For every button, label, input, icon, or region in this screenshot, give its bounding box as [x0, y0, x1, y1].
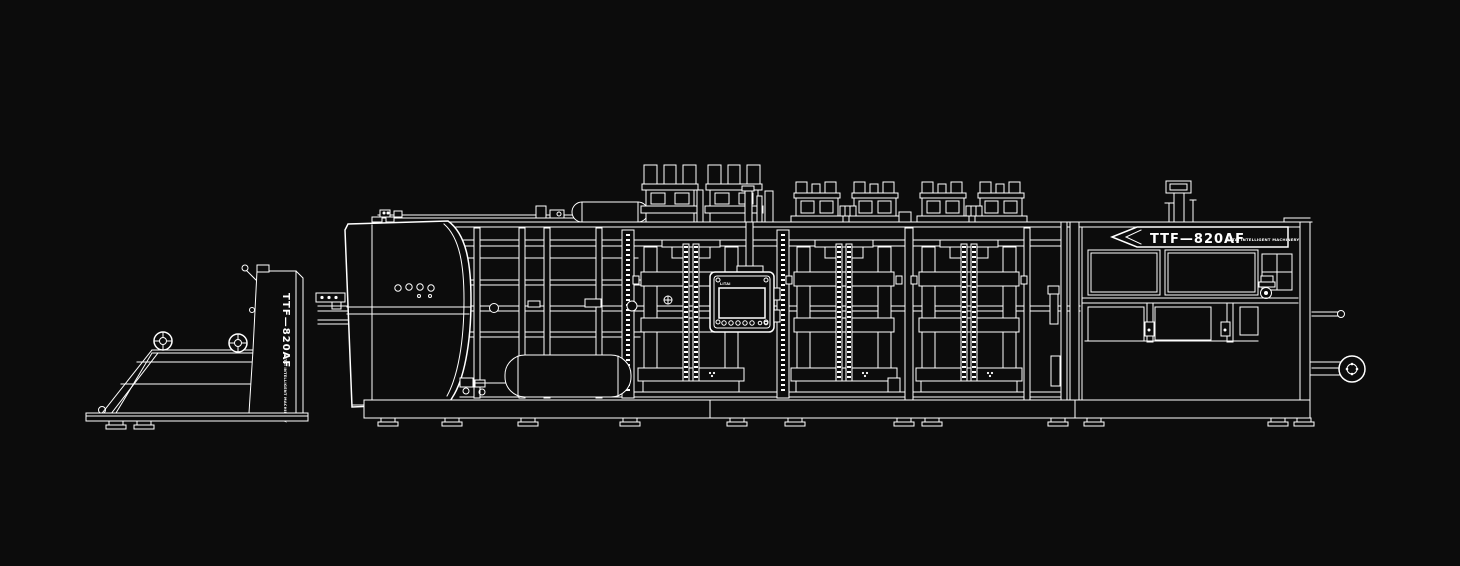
divider-column: [1061, 222, 1067, 418]
sheet-feeder-unit: TTF—820AF LITAI INTELLIGENT MACHINERY: [86, 265, 308, 429]
inspection-window: [1165, 250, 1258, 295]
nameplate-banner: TTF—820AF LITAI INTELLIGENT MACHINERY: [1112, 227, 1299, 247]
thermoforming-machine-drawing: TTF—820AF LITAI INTELLIGENT MACHINERY: [0, 0, 1460, 566]
divider-column: [1070, 222, 1079, 418]
machine-foot: [1268, 418, 1288, 426]
mold-stack: [917, 182, 969, 222]
inspection-window: [1088, 250, 1160, 295]
top-sign: [1165, 181, 1196, 222]
feeder-ramp: [99, 350, 260, 419]
machine-illustration-canvas: TTF—820AF LITAI INTELLIGENT MACHINERY: [0, 0, 1460, 566]
feeder-roller-wheel-icon: [154, 332, 172, 350]
take-up-arms: [1310, 311, 1365, 383]
lower-panel: [1155, 307, 1211, 340]
vacuum-tank-assembly: [460, 355, 631, 397]
takeup-roller-wheel-icon: [1339, 356, 1365, 382]
hmi-brand-label: LITAI: [720, 282, 731, 286]
machine-foot: [620, 418, 640, 426]
machine-foot: [106, 421, 126, 429]
mold-stack: [849, 182, 901, 222]
frame-post: [905, 228, 913, 400]
air-tank: [572, 202, 648, 222]
mold-tower: [705, 165, 763, 222]
mold-stack: [975, 182, 1027, 222]
machine-foot: [727, 418, 747, 426]
frame-post: [1024, 228, 1030, 400]
rod-end-icon: [1338, 311, 1345, 318]
machine-foot: [1084, 418, 1104, 426]
machine-foot: [785, 418, 805, 426]
frame-post: [474, 228, 480, 398]
mold-tower: [641, 165, 699, 222]
machine-foot: [134, 421, 154, 429]
machine-base: [364, 400, 1314, 426]
lower-panel: [1240, 307, 1258, 335]
machine-foot: [442, 418, 462, 426]
mold-towers: [641, 165, 1027, 222]
press-station-1: [786, 240, 902, 392]
top-rail-and-air-tank: [378, 202, 652, 222]
left-cabinet: [345, 217, 471, 412]
feeder-tower: TTF—820AF LITAI INTELLIGENT MACHINERY: [242, 265, 303, 423]
feeder-roller-wheel-icon: [229, 334, 247, 352]
feeder-base: [86, 413, 308, 429]
feeder-lever-icon: [242, 265, 248, 271]
machine-foot: [922, 418, 942, 426]
right-cabinet: TTF—820AF LITAI INTELLIGENT MACHINERY: [1082, 181, 1299, 342]
mold-stack: [791, 182, 843, 222]
machine-foot: [894, 418, 914, 426]
right-end-column: [1300, 222, 1310, 418]
nameplate-brand-label: LITAI INTELLIGENT MACHINERY: [1228, 237, 1299, 242]
lower-panel: [1088, 307, 1144, 341]
machine-foot: [518, 418, 538, 426]
vacuum-tank: [505, 355, 631, 397]
machine-foot: [378, 418, 398, 426]
hmi-screen: [719, 288, 765, 318]
machine-foot: [1294, 418, 1314, 426]
hmi-panel: LITAI: [710, 222, 780, 332]
inspection-windows: [1088, 250, 1292, 295]
machine-foot: [1048, 418, 1068, 426]
press-stations: [633, 240, 1027, 392]
press-station-2: [911, 240, 1027, 392]
